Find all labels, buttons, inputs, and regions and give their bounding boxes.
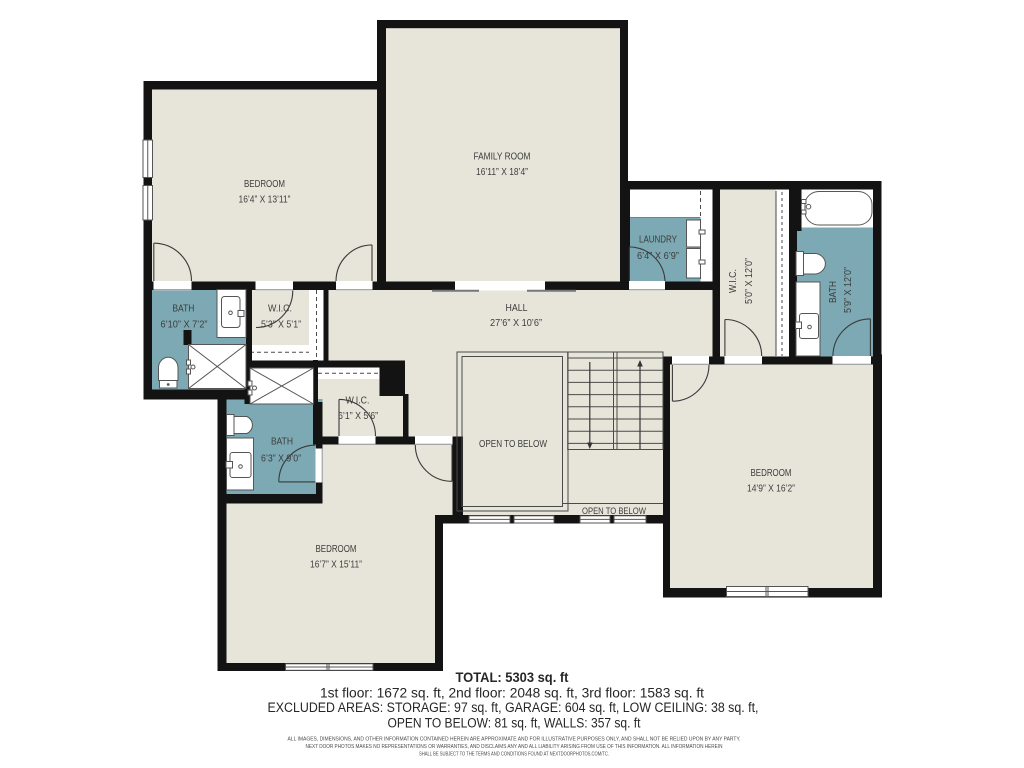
svg-text:BEDROOM: BEDROOM bbox=[244, 179, 285, 190]
svg-text:OPEN TO BELOW: OPEN TO BELOW bbox=[582, 506, 647, 516]
svg-text:5’0” X 12’0”: 5’0” X 12’0” bbox=[744, 257, 755, 304]
svg-text:LAUNDRY: LAUNDRY bbox=[639, 235, 677, 246]
svg-text:14’9” X 16’2”: 14’9” X 16’2” bbox=[747, 484, 796, 495]
svg-text:6’1” X 5’6”: 6’1” X 5’6” bbox=[338, 411, 379, 422]
svg-text:6’4” X 6’9”: 6’4” X 6’9” bbox=[637, 251, 680, 262]
svg-text:6’10” X 7’2”: 6’10” X 7’2” bbox=[161, 320, 209, 331]
svg-text:TOTAL: 5303 sq. ft: TOTAL: 5303 sq. ft bbox=[456, 670, 570, 685]
svg-text:16’7” X 15’11”: 16’7” X 15’11” bbox=[310, 560, 363, 571]
svg-text:W.I.C.: W.I.C. bbox=[728, 269, 739, 293]
svg-text:OPEN TO BELOW: 81 sq. ft, WALL: OPEN TO BELOW: 81 sq. ft, WALLS: 357 sq.… bbox=[388, 716, 641, 731]
svg-text:W.I.C.: W.I.C. bbox=[268, 304, 292, 315]
svg-text:W.I.C.: W.I.C. bbox=[346, 396, 370, 407]
svg-text:1st floor: 1672 sq. ft, 2nd fl: 1st floor: 1672 sq. ft, 2nd floor: 2048 … bbox=[320, 686, 704, 701]
svg-text:OPEN TO BELOW: OPEN TO BELOW bbox=[479, 439, 547, 450]
svg-text:BEDROOM: BEDROOM bbox=[751, 468, 792, 479]
svg-text:27’6” X 10’6”: 27’6” X 10’6” bbox=[490, 318, 543, 329]
svg-text:16’11” X 18’4”: 16’11” X 18’4” bbox=[476, 167, 529, 178]
svg-text:EXCLUDED AREAS: STORAGE: 97 sq: EXCLUDED AREAS: STORAGE: 97 sq. ft, GARA… bbox=[268, 700, 759, 715]
svg-text:BATH: BATH bbox=[271, 437, 293, 448]
svg-text:6’3” X 9’0”: 6’3” X 9’0” bbox=[261, 454, 302, 465]
svg-text:BATH: BATH bbox=[172, 304, 194, 315]
svg-text:HALL: HALL bbox=[506, 303, 528, 314]
svg-text:FAMILY ROOM: FAMILY ROOM bbox=[474, 152, 531, 163]
svg-text:5’9” X 12’0”: 5’9” X 12’0” bbox=[843, 266, 854, 313]
svg-text:16’4” X 13’11”: 16’4” X 13’11” bbox=[239, 195, 292, 206]
svg-text:5’3” X 5’1”: 5’3” X 5’1” bbox=[261, 320, 302, 331]
svg-text:BEDROOM: BEDROOM bbox=[316, 544, 357, 555]
svg-text:SHALL BE SUBJECT TO THE TERMS: SHALL BE SUBJECT TO THE TERMS AND CONDIT… bbox=[419, 752, 609, 758]
svg-text:ALL IMAGES, DIMENSIONS, AND OT: ALL IMAGES, DIMENSIONS, AND OTHER INFORM… bbox=[288, 737, 741, 743]
svg-text:BATH: BATH bbox=[828, 281, 839, 303]
svg-text:NEXT DOOR PHOTOS MAKES NO REPR: NEXT DOOR PHOTOS MAKES NO REPRESENTATION… bbox=[306, 744, 723, 750]
